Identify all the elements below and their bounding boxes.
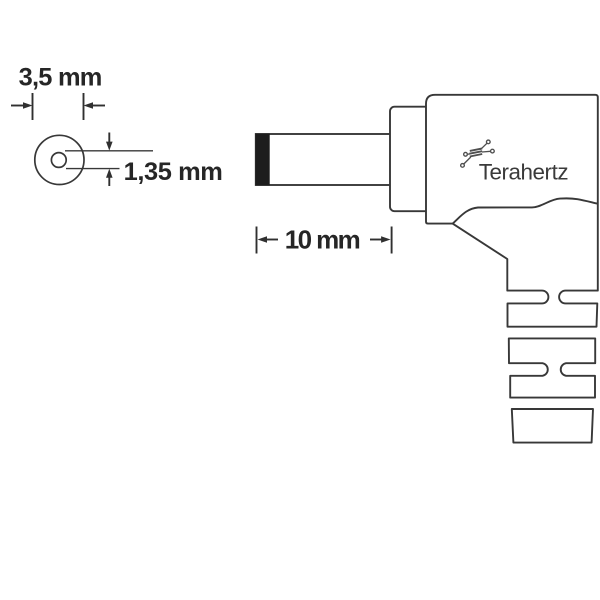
svg-text:Terahertz: Terahertz <box>479 159 569 184</box>
svg-text:3,5 mm: 3,5 mm <box>19 63 102 91</box>
svg-text:1,35 mm: 1,35 mm <box>124 158 223 186</box>
svg-text:10 mm: 10 mm <box>285 225 360 255</box>
